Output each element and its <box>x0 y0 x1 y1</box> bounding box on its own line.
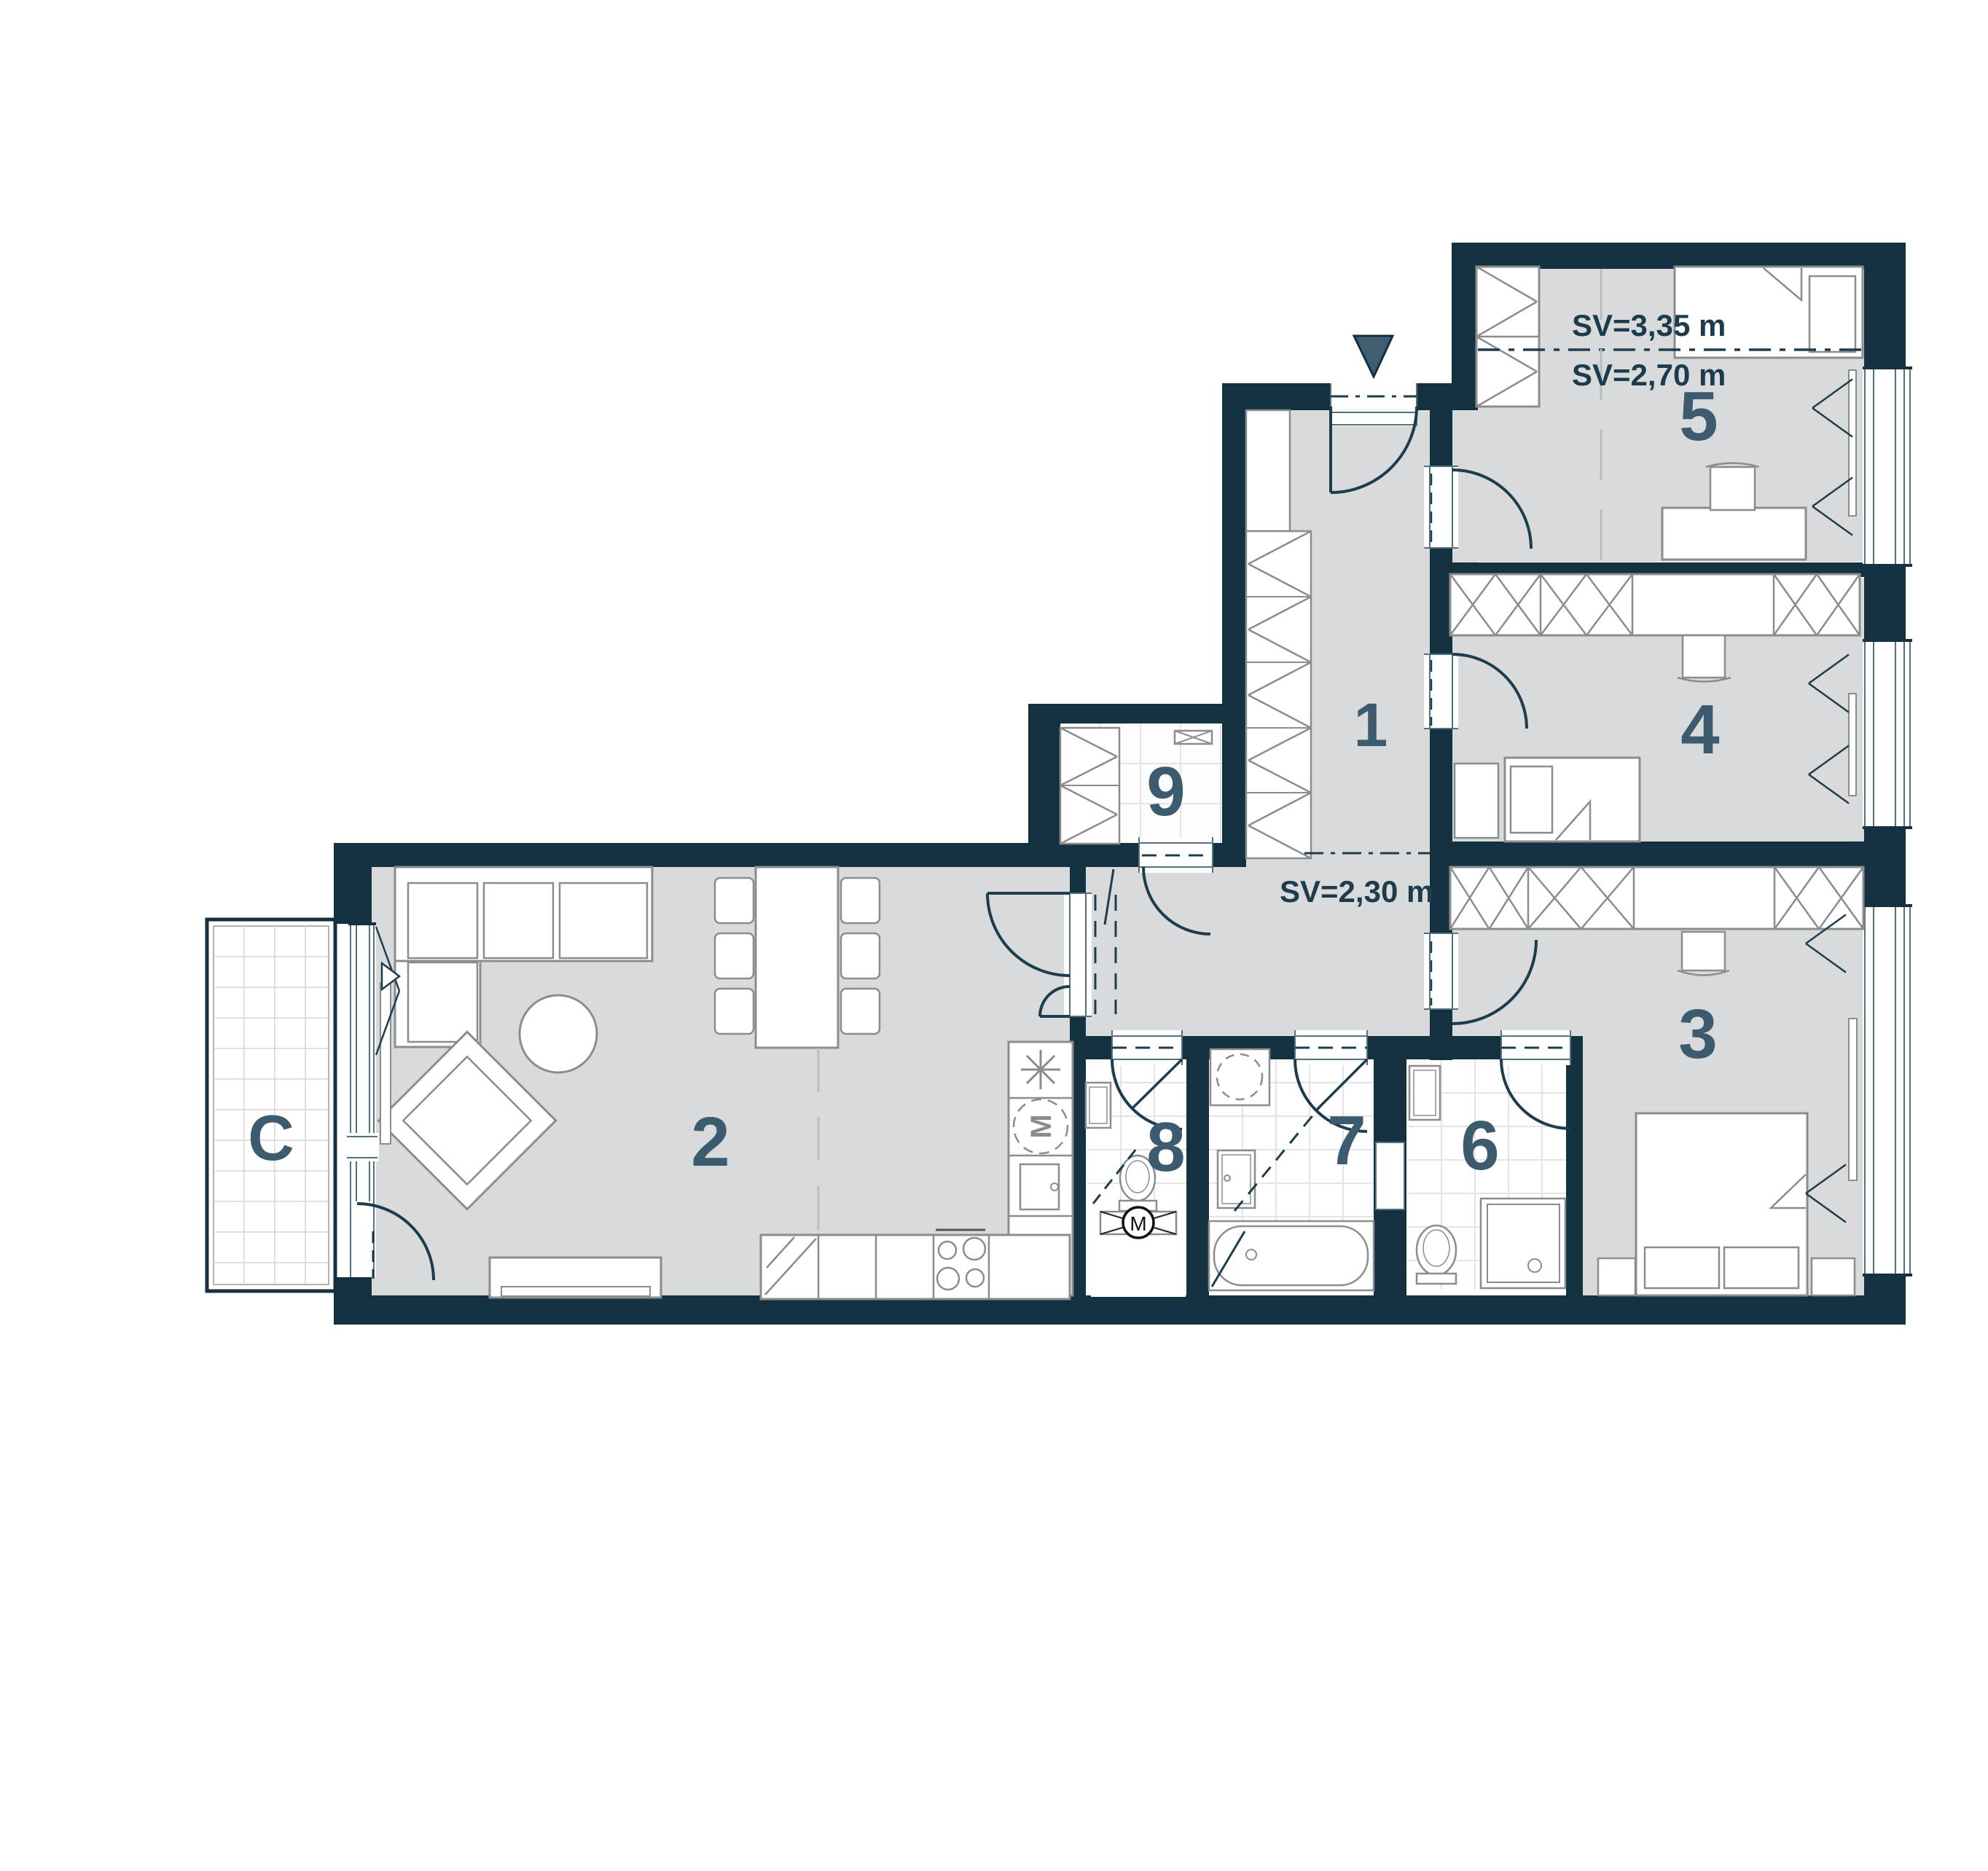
svg-text:M: M <box>1025 1114 1057 1138</box>
svg-text:SV=2,70 m: SV=2,70 m <box>1572 358 1726 392</box>
svg-text:6: 6 <box>1460 1107 1499 1185</box>
svg-text:3: 3 <box>1678 995 1717 1073</box>
svg-text:SV=2,30 m: SV=2,30 m <box>1280 874 1433 909</box>
svg-text:M: M <box>1130 1212 1146 1235</box>
svg-text:C: C <box>248 1102 294 1174</box>
svg-text:7: 7 <box>1327 1102 1366 1180</box>
svg-text:9: 9 <box>1146 753 1185 831</box>
svg-text:2: 2 <box>691 1103 729 1181</box>
svg-text:1: 1 <box>1354 691 1388 759</box>
svg-text:4: 4 <box>1680 691 1719 769</box>
svg-text:8: 8 <box>1146 1108 1185 1186</box>
svg-text:SV=3,35 m: SV=3,35 m <box>1572 308 1726 342</box>
